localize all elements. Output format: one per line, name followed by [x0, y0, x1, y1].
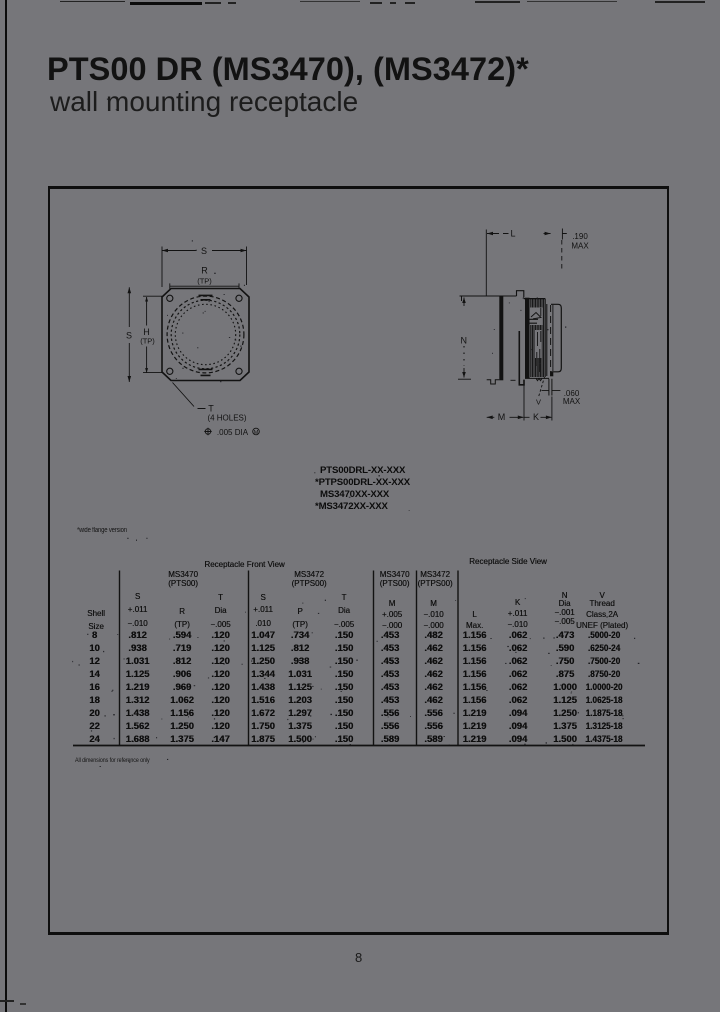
svg-text:H: H — [143, 327, 150, 337]
svg-text:.005 DIA: .005 DIA — [217, 428, 249, 437]
svg-text:S: S — [201, 246, 207, 256]
svg-text:N: N — [461, 336, 468, 346]
svg-text:MAX: MAX — [571, 242, 589, 251]
svg-text:M: M — [254, 430, 259, 436]
svg-text:T: T — [208, 404, 214, 414]
svg-text:L: L — [510, 229, 515, 239]
svg-text:(TP): (TP) — [197, 277, 212, 286]
svg-text:K: K — [533, 412, 539, 422]
svg-text:S: S — [126, 331, 132, 341]
svg-text:(TP): (TP) — [140, 337, 155, 346]
svg-text:V: V — [536, 398, 541, 407]
svg-text:.190: .190 — [572, 232, 588, 241]
svg-text:MAX: MAX — [563, 397, 581, 406]
svg-text:R: R — [201, 266, 208, 276]
svg-text:(4 HOLES): (4 HOLES) — [207, 414, 246, 423]
svg-text:M: M — [498, 412, 506, 422]
